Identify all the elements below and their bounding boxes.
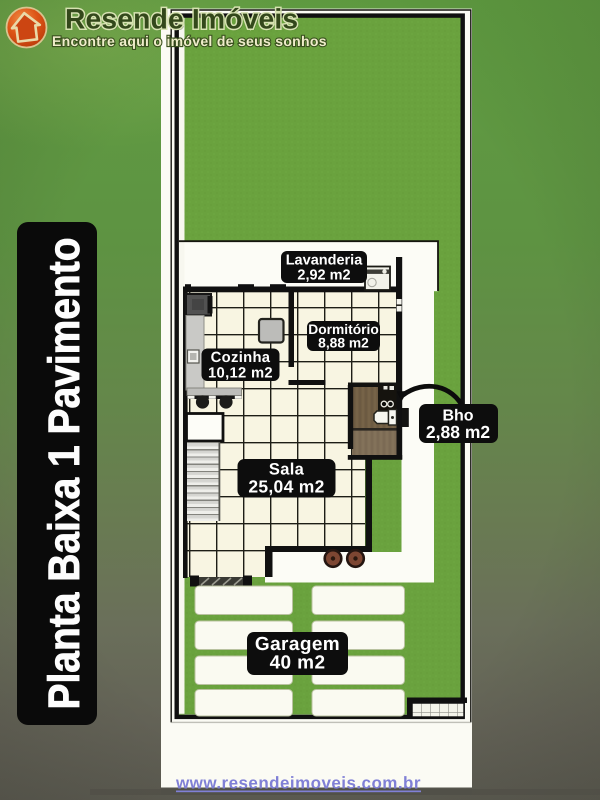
- svg-text:40 m2: 40 m2: [270, 653, 326, 674]
- svg-text:Cozinha: Cozinha: [211, 350, 271, 366]
- svg-text:Lavanderia: Lavanderia: [286, 253, 363, 269]
- svg-text:Planta Baixa 1 Pavimento: Planta Baixa 1 Pavimento: [40, 238, 89, 710]
- svg-text:Resende Imóveis: Resende Imóveis: [65, 3, 298, 35]
- svg-text:8,88 m2: 8,88 m2: [318, 336, 369, 351]
- svg-text:www.resendeimoveis.com.br: www.resendeimoveis.com.br: [175, 774, 421, 793]
- svg-text:2,92 m2: 2,92 m2: [297, 268, 350, 284]
- svg-text:2,88 m2: 2,88 m2: [426, 422, 490, 442]
- svg-text:25,04 m2: 25,04 m2: [248, 477, 324, 497]
- svg-text:10,12 m2: 10,12 m2: [208, 366, 273, 382]
- svg-text:Encontre aqui o imóvel de seus: Encontre aqui o imóvel de seus sonhos: [52, 33, 327, 49]
